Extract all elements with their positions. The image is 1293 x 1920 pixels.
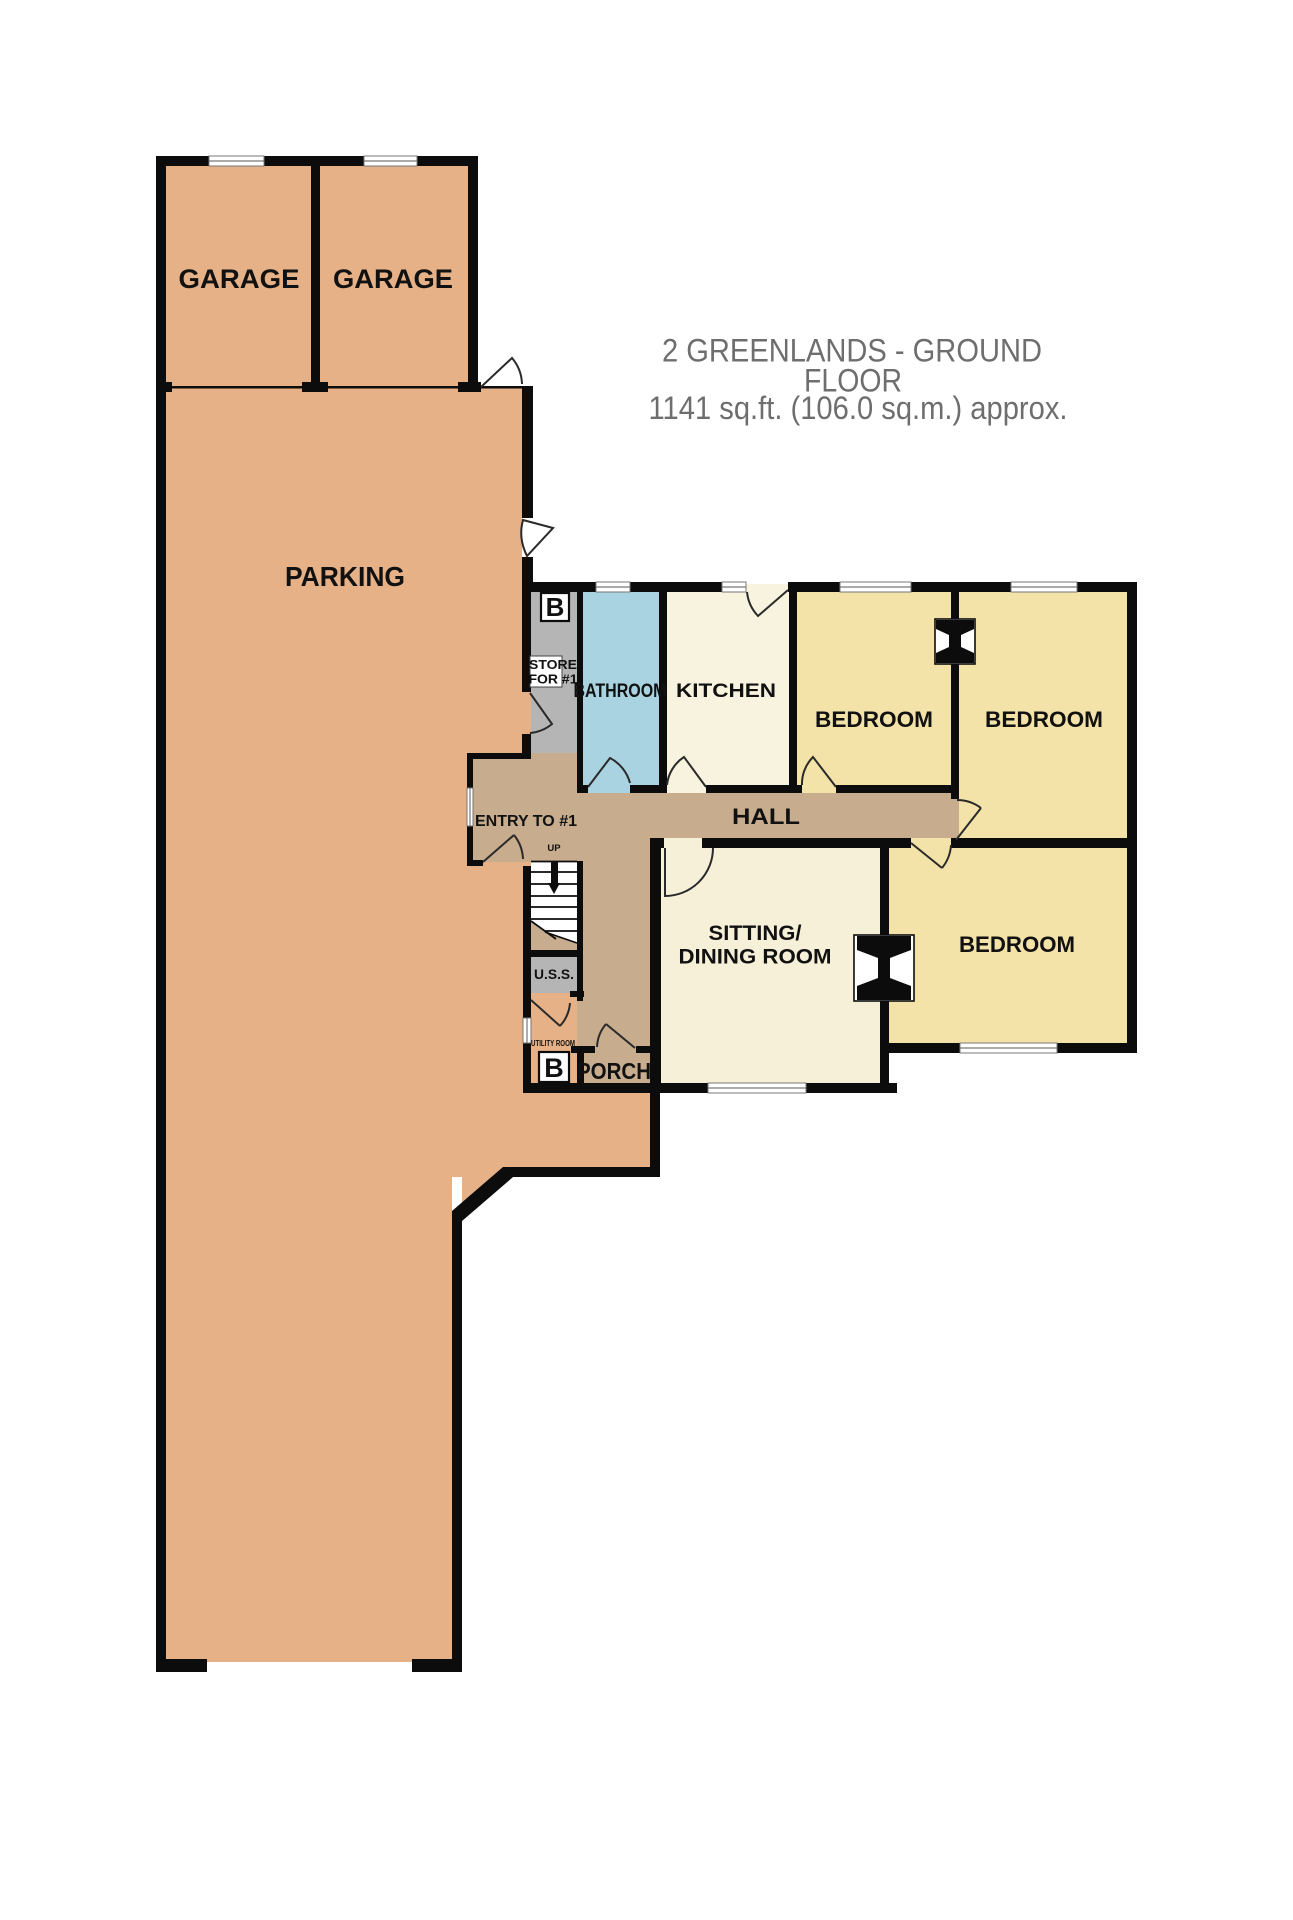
svg-text:BEDROOM: BEDROOM [959, 932, 1075, 957]
svg-text:DINING ROOM: DINING ROOM [679, 946, 832, 969]
svg-text:UTILITY ROOM: UTILITY ROOM [531, 1039, 575, 1048]
svg-text:BATHROOM: BATHROOM [574, 680, 667, 702]
svg-text:1141 sq.ft. (106.0 sq.m.) appr: 1141 sq.ft. (106.0 sq.m.) approx. [649, 390, 1068, 426]
svg-text:FOR #1: FOR #1 [529, 673, 578, 687]
svg-text:GARAGE: GARAGE [333, 264, 453, 294]
svg-text:BEDROOM: BEDROOM [815, 707, 933, 732]
svg-text:UP: UP [547, 843, 561, 854]
svg-text:KITCHEN: KITCHEN [676, 680, 776, 702]
svg-text:GARAGE: GARAGE [179, 264, 300, 294]
svg-text:B: B [546, 592, 565, 622]
svg-text:B: B [544, 1053, 564, 1083]
svg-text:SITTING/: SITTING/ [709, 922, 802, 945]
svg-text:HALL: HALL [732, 804, 800, 829]
svg-text:ENTRY TO #1: ENTRY TO #1 [475, 813, 577, 830]
svg-text:PARKING: PARKING [285, 561, 405, 592]
svg-text:BEDROOM: BEDROOM [985, 707, 1103, 732]
svg-text:STORE: STORE [529, 658, 577, 672]
svg-text:PORCH: PORCH [577, 1058, 651, 1084]
svg-text:U.S.S.: U.S.S. [534, 966, 574, 982]
